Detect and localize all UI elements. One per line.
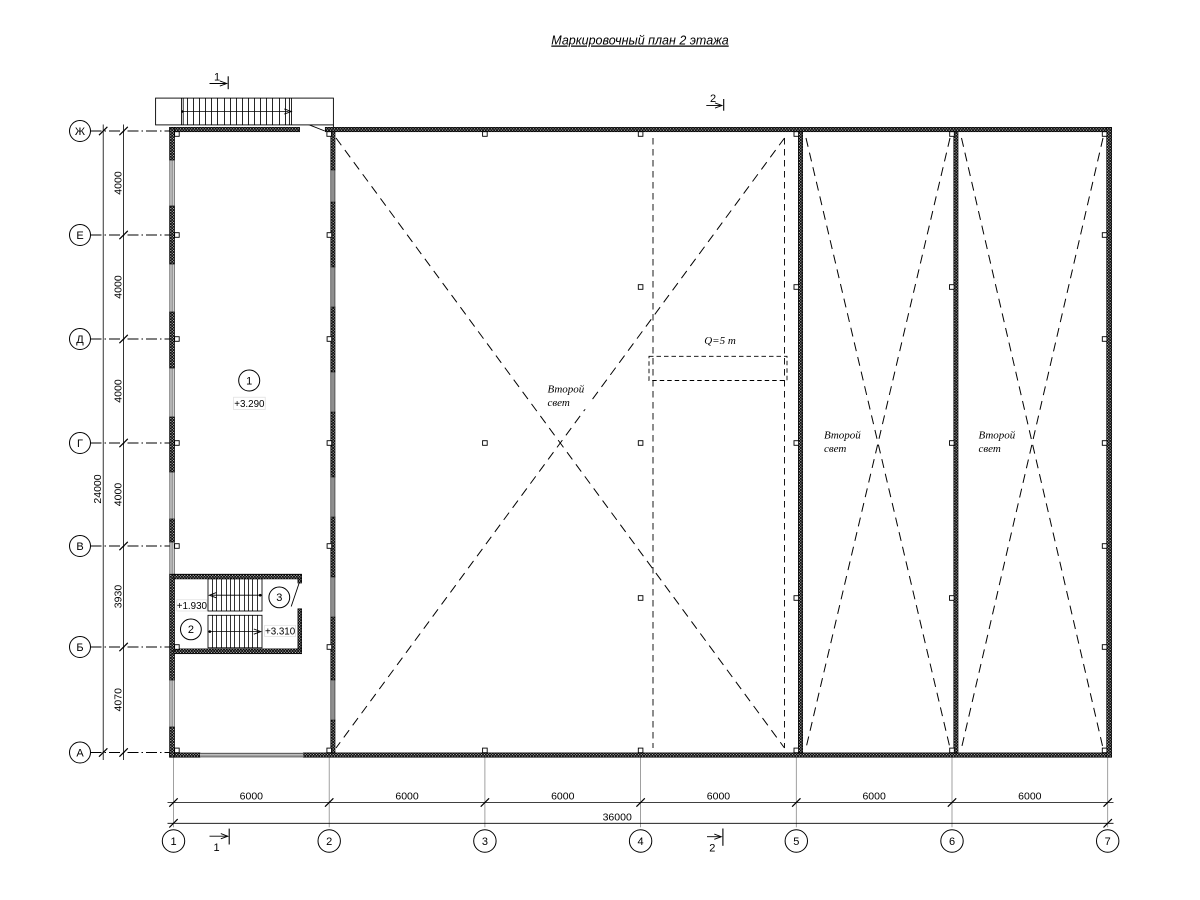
svg-text:6000: 6000	[1018, 790, 1042, 802]
svg-text:6: 6	[949, 836, 955, 848]
svg-text:6000: 6000	[551, 790, 575, 802]
svg-text:Второй: Второй	[548, 384, 585, 396]
svg-text:1: 1	[246, 375, 252, 387]
svg-text:Маркировочный план 2 этажа: Маркировочный план 2 этажа	[551, 34, 728, 48]
svg-text:Второй: Второй	[979, 430, 1016, 442]
svg-text:1: 1	[213, 842, 219, 854]
svg-text:+3.290: +3.290	[234, 399, 265, 410]
svg-text:2: 2	[710, 93, 716, 105]
svg-text:Q=5 т: Q=5 т	[704, 335, 736, 347]
svg-text:6000: 6000	[240, 790, 264, 802]
svg-text:2: 2	[188, 624, 194, 636]
svg-text:3930: 3930	[112, 585, 124, 609]
svg-text:4000: 4000	[112, 379, 124, 403]
svg-text:Ж: Ж	[75, 126, 85, 138]
svg-text:1: 1	[170, 836, 176, 848]
svg-text:2: 2	[709, 842, 715, 854]
svg-text:6000: 6000	[707, 790, 731, 802]
svg-text:Е: Е	[76, 230, 83, 242]
svg-text:5: 5	[793, 836, 799, 848]
svg-text:свет: свет	[548, 397, 570, 409]
svg-text:4070: 4070	[112, 688, 124, 712]
svg-text:7: 7	[1105, 836, 1111, 848]
svg-text:Второй: Второй	[824, 430, 861, 442]
svg-text:2: 2	[326, 836, 332, 848]
svg-text:6000: 6000	[862, 790, 886, 802]
svg-text:4000: 4000	[112, 275, 124, 299]
svg-text:+3.310: +3.310	[265, 626, 296, 637]
svg-text:4000: 4000	[112, 171, 124, 195]
svg-text:1: 1	[214, 72, 220, 84]
svg-text:24000: 24000	[92, 474, 104, 503]
svg-text:3: 3	[276, 592, 282, 604]
svg-text:4: 4	[638, 836, 644, 848]
svg-text:свет: свет	[824, 443, 846, 455]
svg-text:6000: 6000	[395, 790, 419, 802]
svg-text:Г: Г	[77, 438, 83, 450]
svg-text:4000: 4000	[112, 483, 124, 507]
svg-text:+1.930: +1.930	[177, 601, 208, 612]
svg-text:Д: Д	[76, 334, 84, 346]
svg-text:А: А	[76, 747, 84, 759]
svg-text:свет: свет	[979, 443, 1001, 455]
svg-text:В: В	[76, 541, 83, 553]
svg-text:3: 3	[482, 836, 488, 848]
svg-text:36000: 36000	[603, 811, 632, 823]
svg-text:Б: Б	[76, 642, 83, 654]
